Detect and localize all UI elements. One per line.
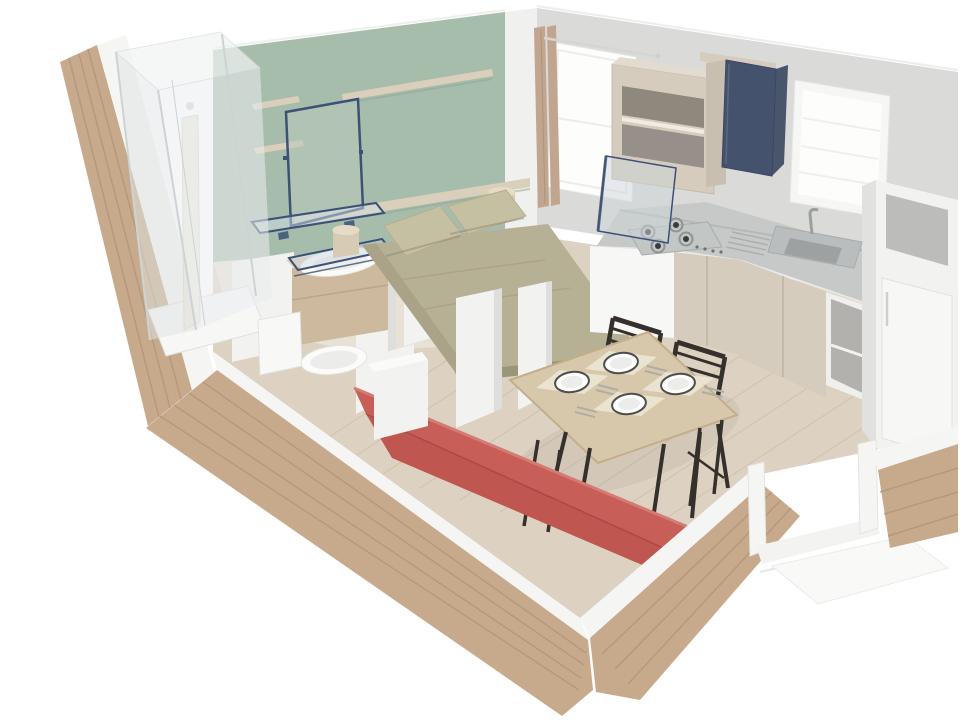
navy-cabinet-door bbox=[722, 60, 776, 176]
floorplan-render bbox=[0, 0, 960, 720]
floorplan-svg bbox=[0, 0, 960, 720]
sofa-side-unit bbox=[374, 360, 428, 440]
burner bbox=[673, 222, 679, 228]
door-post-left bbox=[748, 462, 766, 556]
fridge-unit bbox=[862, 180, 958, 472]
mirror-bracket-right bbox=[359, 150, 363, 154]
burner bbox=[655, 243, 661, 249]
partition-wall bbox=[456, 290, 494, 428]
mirror-bracket-left bbox=[283, 156, 287, 160]
burner bbox=[683, 236, 689, 242]
hob-glass-lid bbox=[598, 156, 676, 243]
navy-wall-cabinet bbox=[700, 52, 788, 187]
toilet-tank bbox=[258, 312, 302, 375]
